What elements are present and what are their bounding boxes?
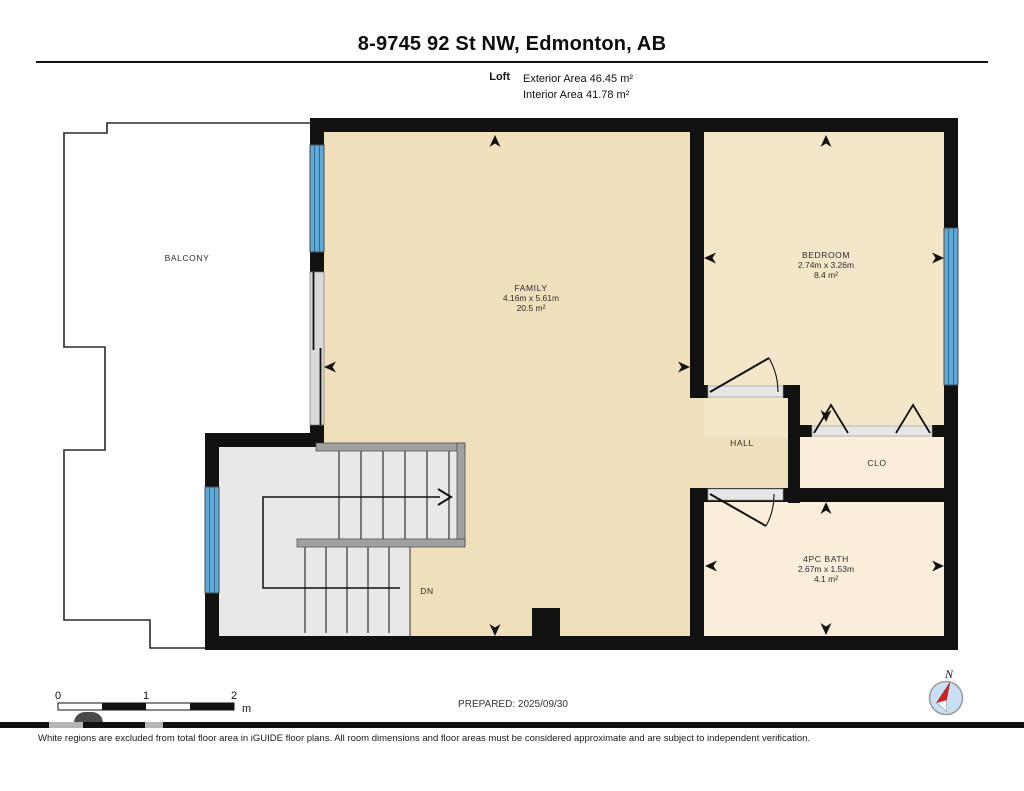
hall-label: HALL <box>730 438 754 448</box>
window-bedroom-right <box>944 228 958 385</box>
bedroom-area: 8.4 m² <box>814 270 838 280</box>
closet-label: CLO <box>867 458 886 468</box>
bedroom-label: BEDROOM <box>802 250 850 260</box>
family-dimensions: 4.16m x 5.61m <box>503 293 559 303</box>
wall-family-bath <box>690 488 704 636</box>
balcony-label: BALCONY <box>165 253 210 263</box>
wall-top <box>310 118 958 132</box>
wall-stairs-top <box>205 433 324 447</box>
compass: N <box>930 667 963 715</box>
bath-area: 4.1 m² <box>814 574 838 584</box>
wall-bottom <box>205 636 958 650</box>
window-family-left <box>310 145 324 252</box>
family-area: 20.5 m² <box>517 303 546 313</box>
scale-tick-1: 1 <box>143 690 149 702</box>
wall-family-stub <box>532 608 560 636</box>
compass-north-label: N <box>944 667 954 681</box>
wall-bedroom-door-left-stub <box>690 385 708 398</box>
wall-closet-left-stub <box>800 425 812 437</box>
family-label: FAMILY <box>514 283 547 293</box>
footer-divider-gap <box>49 722 83 728</box>
scale-tick-0: 0 <box>55 690 61 702</box>
closet-door-threshold <box>812 426 932 436</box>
bath-label: 4PC BATH <box>803 554 849 564</box>
bedroom-dimensions: 2.74m x 3.26m <box>798 260 854 270</box>
prepared-date: PREPARED: 2025/09/30 <box>388 699 638 710</box>
wall-family-bedroom <box>690 132 704 398</box>
scale-unit: m <box>242 703 251 715</box>
floor-plan-page: 8-9745 92 St NW, Edmonton, AB Loft Exter… <box>0 0 1024 791</box>
wall-closet-right-stub <box>932 425 944 437</box>
floor-plan-drawing: FAMILY 4.16m x 5.61m 20.5 m² BEDROOM 2.7… <box>0 0 1024 791</box>
wall-hall-closet <box>788 385 800 503</box>
disclaimer-text: White regions are excluded from total fl… <box>38 733 998 744</box>
scale-tick-2: 2 <box>231 690 237 702</box>
patio-door <box>310 272 324 425</box>
stairs-down-label: DN <box>420 586 433 596</box>
bath-dimensions: 2.67m x 1.53m <box>798 564 854 574</box>
footer-divider-gap <box>145 722 163 728</box>
window-stairs-left <box>205 487 219 593</box>
